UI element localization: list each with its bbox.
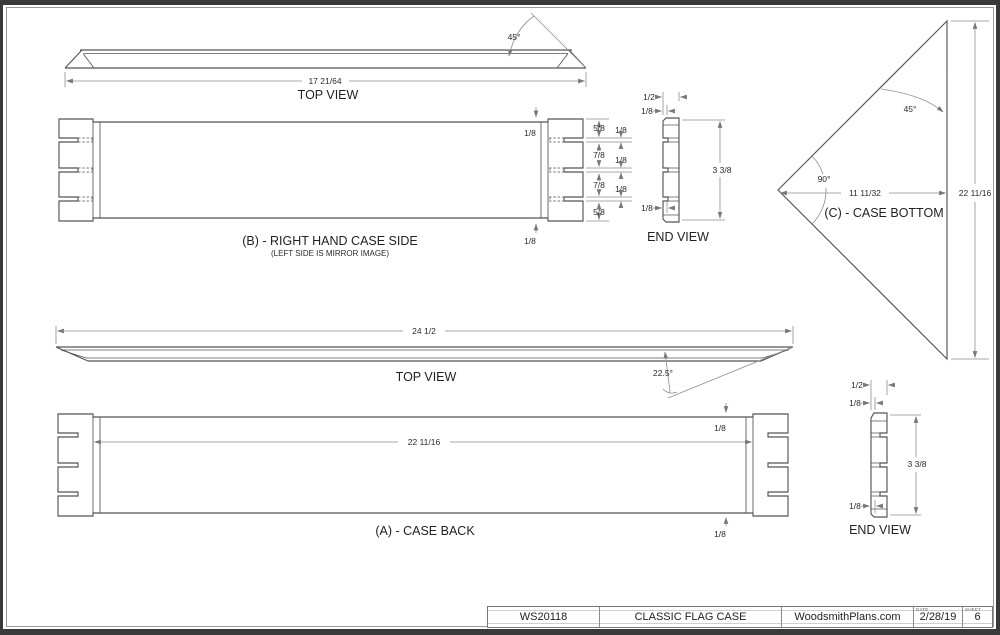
side-b-segment-dim-2: 7/8 [593, 150, 605, 160]
case-bottom-height-label: 22 11/16 [959, 188, 992, 198]
case-back-width-label: 22 11/16 [408, 437, 441, 447]
case-bottom-top-angle-label: 45° [904, 104, 917, 114]
title-block-date-cell: DATE 2/28/19 [914, 607, 963, 627]
title-block: WS20118 CLASSIC FLAG CASE WoodsmithPlans… [487, 606, 993, 628]
case-bottom-width-label: 11 11/32 [849, 188, 881, 198]
top-view-b-title: TOP VIEW [298, 88, 359, 102]
side-b-groove-dim-2: 1/8 [615, 155, 627, 165]
top-view-b-length-label: 17 21/64 [308, 76, 341, 86]
case-bottom-corner-angle-label: 90° [818, 174, 831, 184]
end-view-a-width-label: 1/2 [851, 380, 863, 390]
end-view-a-drawing: 1/2 1/8 3 3/8 1/8 END VIEW [849, 380, 927, 537]
title-block-sheet-cell: SHEET 6 [963, 607, 992, 627]
case-back-lip-top-label: 1/8 [714, 423, 726, 433]
side-b-lip-top-label: 1/8 [524, 128, 536, 138]
end-view-a-height-label: 3 3/8 [908, 459, 927, 469]
top-view-a-length-label: 24 1/2 [412, 326, 436, 336]
top-view-a-angle-label: 22.5° [653, 368, 673, 378]
top-view-b-angle-label: 45° [508, 32, 521, 42]
title-block-plan-number: WS20118 [488, 607, 600, 627]
end-view-b-height-label: 3 3/8 [713, 165, 732, 175]
end-view-b-lip-top-label: 1/8 [641, 106, 653, 116]
case-bottom-title: (C) - CASE BOTTOM [824, 206, 943, 220]
side-b-subtitle: (LEFT SIDE IS MIRROR IMAGE) [271, 249, 389, 258]
side-b-segment-dim-4: 5/8 [593, 207, 605, 217]
case-side-b-drawing: 1/8 1/8 5/8 7/8 7/8 5/8 1/8 1/8 1 [59, 107, 632, 258]
case-bottom-c-drawing: 90° 45° 11 11/32 (C) - CASE BOTTOM 22 11… [778, 21, 991, 359]
side-b-segment-dim-1: 5/8 [593, 123, 605, 133]
title-block-date-label: DATE [916, 607, 928, 612]
top-view-a-title: TOP VIEW [396, 370, 457, 384]
title-block-sheet-label: SHEET [965, 607, 981, 612]
drawing-sheet: 45° 17 21/64 TOP VIEW 1/8 1/8 5/8 [0, 0, 1000, 635]
title-block-date-value: 2/28/19 [920, 611, 957, 623]
side-b-lip-bottom-label: 1/8 [524, 236, 536, 246]
side-b-groove-dim-1: 1/8 [615, 125, 627, 135]
end-view-b-title: END VIEW [647, 230, 709, 244]
drawing-canvas: 45° 17 21/64 TOP VIEW 1/8 1/8 5/8 [3, 5, 1000, 635]
side-b-title: (B) - RIGHT HAND CASE SIDE [242, 234, 417, 248]
end-view-b-lip-bottom-label: 1/8 [641, 203, 653, 213]
side-b-segment-dim-3: 7/8 [593, 180, 605, 190]
case-back-a-drawing: 22 11/16 1/8 1/8 (A) - CASE BACK [58, 403, 788, 539]
end-view-a-lip-bottom-label: 1/8 [849, 501, 861, 511]
case-back-lip-bottom-label: 1/8 [714, 529, 726, 539]
title-block-plan-title: CLASSIC FLAG CASE [600, 607, 782, 627]
end-view-a-title: END VIEW [849, 523, 911, 537]
title-block-website: WoodsmithPlans.com [782, 607, 914, 627]
side-b-groove-dim-3: 1/8 [615, 184, 627, 194]
end-view-b-drawing: 1/2 1/8 3 3/8 1/8 END VIEW [641, 92, 732, 244]
end-view-b-width-label: 1/2 [643, 92, 655, 102]
top-view-b-drawing: 45° 17 21/64 TOP VIEW [65, 13, 586, 102]
case-back-title: (A) - CASE BACK [375, 524, 475, 538]
end-view-a-lip-top-label: 1/8 [849, 398, 861, 408]
top-view-a-drawing: 22.5° 24 1/2 TOP VIEW [56, 326, 793, 398]
title-block-sheet-value: 6 [974, 611, 980, 623]
